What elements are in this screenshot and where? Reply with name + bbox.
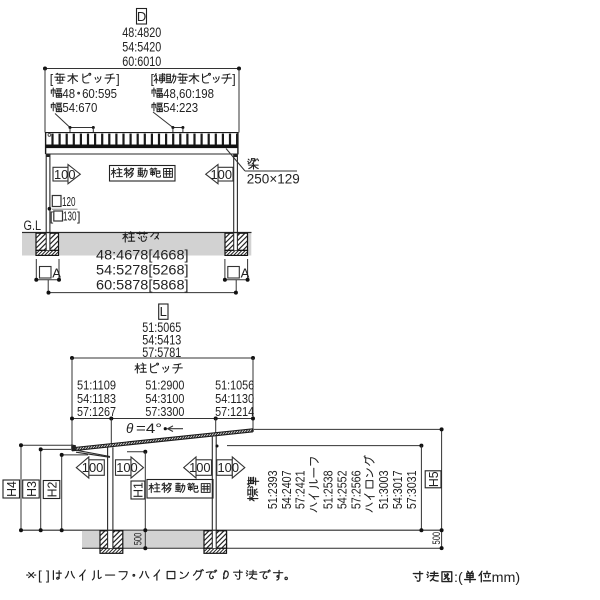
svg-text:100: 100 bbox=[211, 167, 233, 182]
svg-text:θ: θ bbox=[126, 421, 134, 436]
svg-text:48:4678[4668]: 48:4678[4668] bbox=[96, 247, 189, 262]
svg-text:57:3300: 57:3300 bbox=[145, 404, 184, 419]
svg-text:57:2421: 57:2421 bbox=[294, 470, 308, 509]
svg-text:A: A bbox=[52, 266, 61, 281]
svg-text:500: 500 bbox=[132, 533, 144, 546]
svg-text:H3: H3 bbox=[24, 481, 39, 497]
svg-text:100: 100 bbox=[116, 460, 138, 475]
svg-text:L: L bbox=[160, 304, 167, 319]
svg-text:H5: H5 bbox=[426, 471, 441, 487]
svg-text:51:3003: 51:3003 bbox=[377, 470, 391, 509]
svg-text:54:223: 54:223 bbox=[163, 100, 198, 115]
svg-text:120: 120 bbox=[62, 195, 76, 209]
svg-text:500: 500 bbox=[431, 532, 443, 545]
svg-text:57:3031: 57:3031 bbox=[405, 470, 419, 509]
svg-text:51:2538: 51:2538 bbox=[322, 470, 336, 509]
svg-text:57:1214: 57:1214 bbox=[215, 404, 254, 419]
svg-text:A: A bbox=[241, 266, 250, 281]
svg-text:H2: H2 bbox=[44, 482, 59, 498]
svg-text:[: [ bbox=[50, 72, 54, 87]
svg-text:60:6010: 60:6010 bbox=[122, 54, 161, 69]
svg-text:100: 100 bbox=[54, 167, 76, 182]
svg-text:54:5420: 54:5420 bbox=[122, 39, 161, 54]
svg-text:54:2552: 54:2552 bbox=[335, 470, 349, 509]
svg-text:48:4820: 48:4820 bbox=[122, 25, 161, 40]
svg-text:=4°: =4° bbox=[136, 421, 162, 436]
svg-text::(: :( bbox=[454, 569, 463, 585]
svg-text:54:2407: 54:2407 bbox=[280, 470, 294, 509]
svg-text:250×129: 250×129 bbox=[247, 171, 300, 186]
svg-text:mm): mm) bbox=[492, 569, 521, 585]
svg-text:48,60:198: 48,60:198 bbox=[163, 86, 214, 101]
svg-text:130: 130 bbox=[63, 210, 77, 224]
svg-text:]: ] bbox=[116, 72, 119, 87]
svg-text:[ ]: [ ] bbox=[38, 568, 50, 583]
svg-text:54:670: 54:670 bbox=[62, 100, 97, 115]
svg-text:H1: H1 bbox=[131, 482, 146, 498]
svg-text:51:2393: 51:2393 bbox=[266, 470, 280, 509]
svg-text:100: 100 bbox=[189, 460, 211, 475]
svg-text:54:3017: 54:3017 bbox=[391, 470, 405, 509]
svg-text:[: [ bbox=[151, 72, 155, 87]
svg-text:57:1267: 57:1267 bbox=[77, 404, 116, 419]
svg-text:57:2566: 57:2566 bbox=[349, 470, 363, 509]
svg-text:G.L: G.L bbox=[24, 218, 42, 233]
svg-text:D: D bbox=[137, 9, 146, 24]
svg-text:]: ] bbox=[232, 72, 235, 87]
svg-text:48: 48 bbox=[62, 86, 75, 101]
svg-text:60:595: 60:595 bbox=[82, 86, 117, 101]
svg-text:H4: H4 bbox=[4, 481, 19, 497]
svg-text:60:5878[5868]: 60:5878[5868] bbox=[96, 277, 189, 292]
svg-text:54:5278[5268]: 54:5278[5268] bbox=[96, 262, 189, 277]
svg-text:100: 100 bbox=[82, 460, 104, 475]
svg-text:100: 100 bbox=[218, 460, 240, 475]
svg-text:]: ] bbox=[77, 210, 80, 224]
